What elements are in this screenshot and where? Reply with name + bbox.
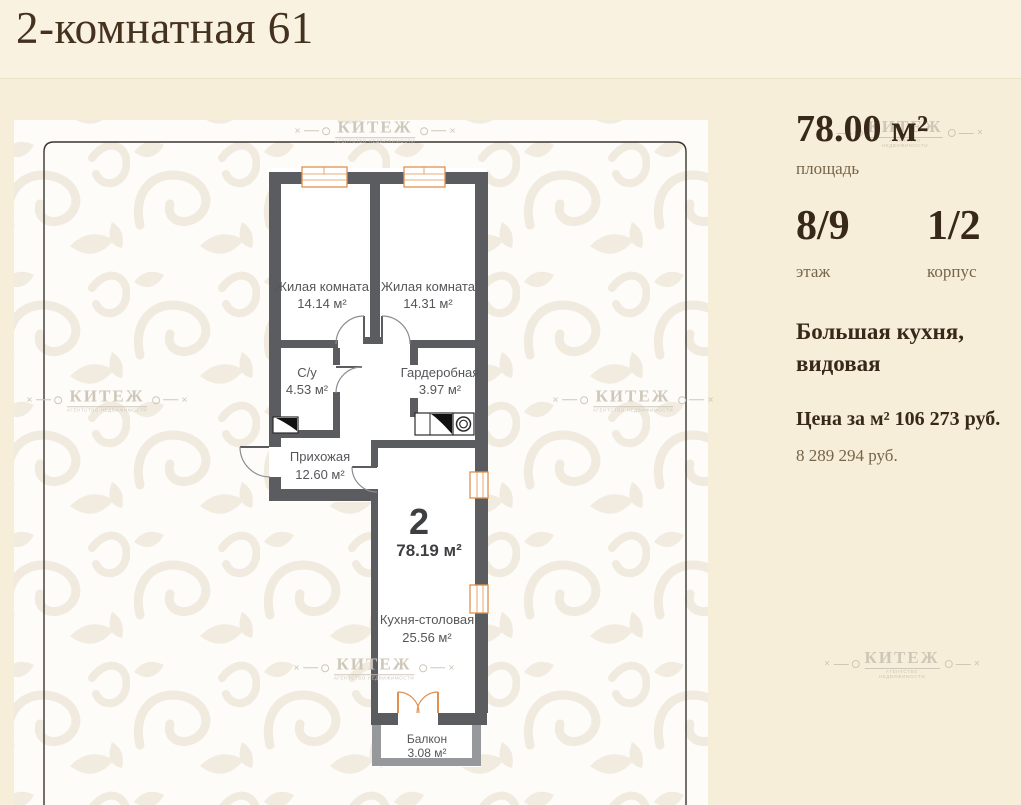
apartment-number: 2 <box>409 501 429 542</box>
room-area: 14.31 м² <box>403 296 453 311</box>
vent-shaft-bathroom <box>273 417 298 433</box>
feature-text: Большая кухня, видовая <box>796 316 1006 380</box>
floor-label: этаж <box>796 263 830 280</box>
room-label: Гардеробная <box>401 365 480 380</box>
room-label: Кухня-столовая <box>380 612 474 627</box>
floor-value: 8/9 <box>796 205 850 247</box>
room-label: Жилая комната <box>381 279 476 294</box>
room-area: 3.08 м² <box>408 746 447 760</box>
price-per-m2: Цена за м² 106 273 руб. <box>796 408 1021 431</box>
room-label: Балкон <box>407 732 447 746</box>
building-label: корпус <box>927 263 977 280</box>
room-area: 12.60 м² <box>295 467 345 482</box>
window-bedroom-2 <box>404 167 445 187</box>
room-label: С/у <box>297 365 317 380</box>
apartment-total-area: 78.19 м² <box>396 541 462 560</box>
room-area: 3.97 м² <box>419 382 462 397</box>
window-kitchen-1 <box>470 472 488 498</box>
room-label: Жилая комната <box>275 279 370 294</box>
room-area: 14.14 м² <box>297 296 347 311</box>
vent-shaft-wardrobe <box>415 413 453 435</box>
window-bedroom-1 <box>302 167 347 187</box>
room-area: 25.56 м² <box>402 630 452 645</box>
building-value: 1/2 <box>927 205 981 247</box>
washing-machine-icon <box>453 413 474 435</box>
total-price: 8 289 294 руб. <box>796 447 898 464</box>
area-label: площадь <box>796 160 859 177</box>
window-kitchen-2 <box>470 585 488 613</box>
room-area: 4.53 м² <box>286 382 329 397</box>
area-value: 78.00 м² <box>796 110 928 148</box>
page: { "page": { "title": "2-комнатная 61" },… <box>0 0 1021 805</box>
room-label: Прихожая <box>290 449 350 464</box>
